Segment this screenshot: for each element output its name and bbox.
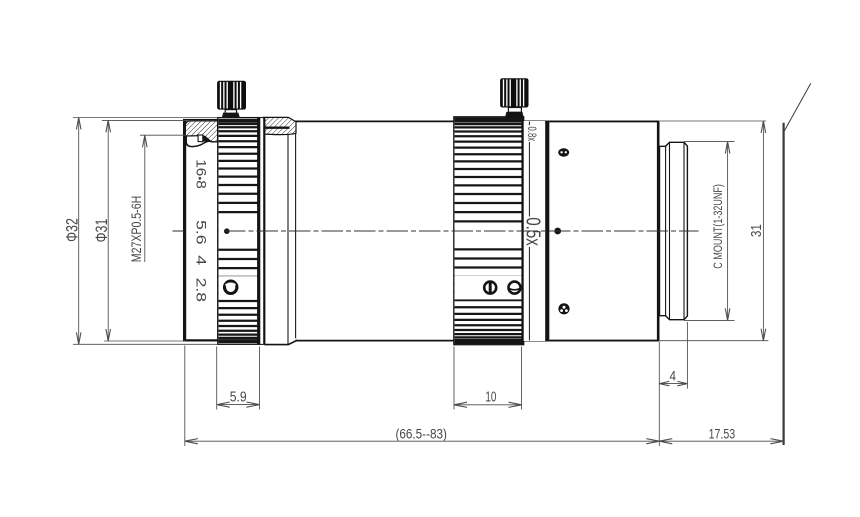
svg-text:Φ32: Φ32 bbox=[63, 218, 81, 242]
svg-text:31: 31 bbox=[749, 224, 765, 237]
svg-text:5.9: 5.9 bbox=[230, 390, 247, 406]
svg-text:Φ31: Φ31 bbox=[93, 219, 111, 243]
svg-text:C MOUNT(1-32UNF): C MOUNT(1-32UNF) bbox=[711, 184, 725, 269]
svg-text:0.8x: 0.8x bbox=[525, 127, 537, 142]
svg-text:5.6: 5.6 bbox=[193, 220, 209, 245]
svg-text:17.53: 17.53 bbox=[709, 426, 736, 442]
svg-text:M27XP0.5-6H: M27XP0.5-6H bbox=[128, 196, 144, 263]
svg-text:2.8: 2.8 bbox=[193, 278, 209, 303]
svg-text:4: 4 bbox=[193, 255, 209, 265]
svg-text:(66.5--83): (66.5--83) bbox=[395, 426, 447, 441]
svg-text:16•8: 16•8 bbox=[193, 159, 209, 189]
svg-text:4: 4 bbox=[670, 367, 677, 383]
svg-text:10: 10 bbox=[485, 389, 496, 405]
